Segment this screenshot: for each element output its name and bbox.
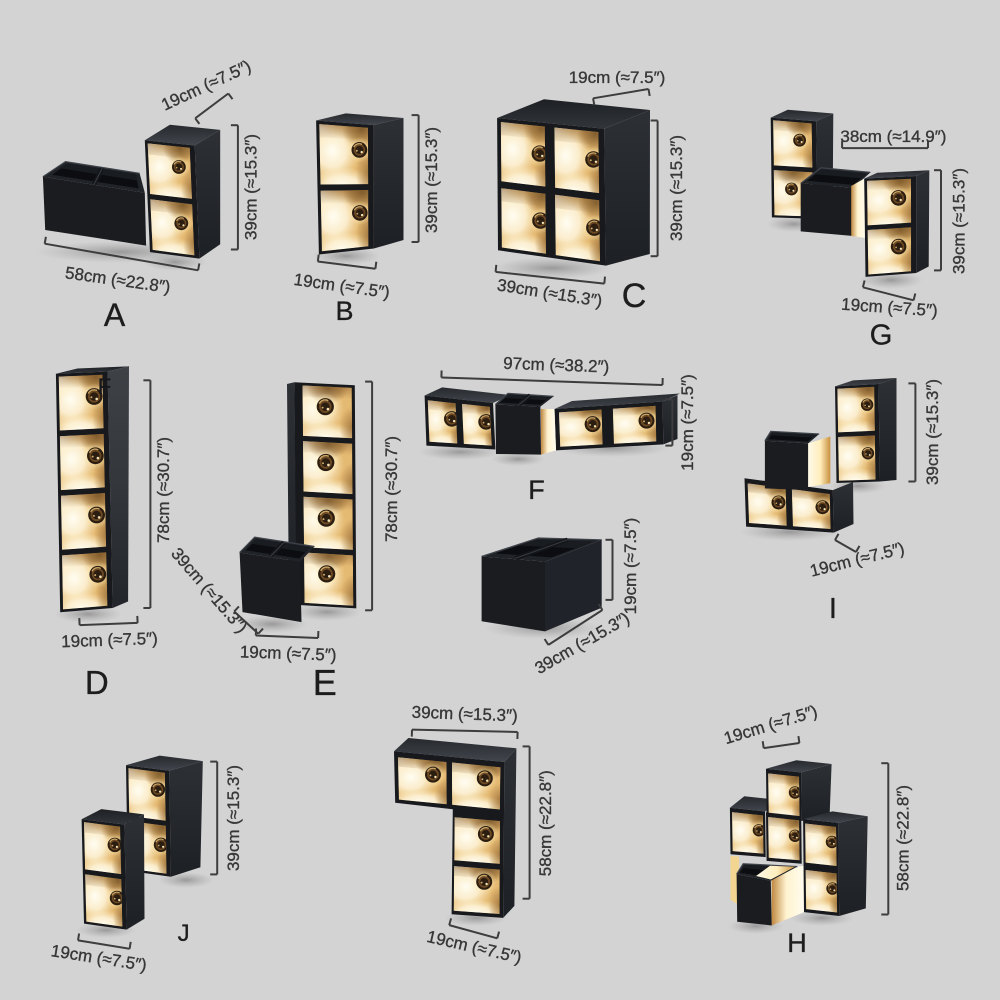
svg-text:97cm (≈38.2″): 97cm (≈38.2″) bbox=[503, 354, 610, 377]
svg-text:E: E bbox=[313, 662, 337, 703]
svg-text:19cm (≈7.5″): 19cm (≈7.5″) bbox=[569, 68, 666, 87]
svg-text:D: D bbox=[85, 664, 109, 701]
svg-text:J: J bbox=[178, 920, 190, 947]
svg-text:39cm (≈15.3″): 39cm (≈15.3″) bbox=[411, 703, 518, 726]
svg-text:39cm (≈15.3″): 39cm (≈15.3″) bbox=[667, 135, 686, 241]
svg-text:G: G bbox=[870, 320, 893, 352]
svg-text:39cm (≈15.3″): 39cm (≈15.3″) bbox=[923, 379, 942, 485]
svg-text:A: A bbox=[104, 297, 126, 333]
svg-text:39cm (≈15.3″): 39cm (≈15.3″) bbox=[422, 127, 441, 233]
svg-text:78cm (≈30.7″): 78cm (≈30.7″) bbox=[154, 437, 173, 543]
svg-text:58cm (≈22.8″): 58cm (≈22.8″) bbox=[894, 785, 913, 891]
svg-text:78cm (≈30.7″): 78cm (≈30.7″) bbox=[382, 436, 401, 542]
svg-text:38cm (≈14.9″): 38cm (≈14.9″) bbox=[840, 127, 946, 146]
svg-text:I: I bbox=[829, 593, 837, 625]
svg-text:C: C bbox=[622, 277, 647, 315]
svg-text:39cm (≈15.3″): 39cm (≈15.3″) bbox=[242, 134, 261, 240]
svg-text:39cm (≈15.3″): 39cm (≈15.3″) bbox=[224, 765, 243, 871]
svg-text:F: F bbox=[528, 475, 545, 505]
svg-text:F: F bbox=[98, 374, 111, 399]
svg-text:19cm (≈7.5″): 19cm (≈7.5″) bbox=[621, 518, 640, 615]
svg-text:19cm (≈7.5″): 19cm (≈7.5″) bbox=[678, 374, 697, 471]
svg-text:H: H bbox=[787, 928, 807, 958]
svg-text:39cm (≈15.3″): 39cm (≈15.3″) bbox=[949, 168, 968, 274]
svg-text:19cm (≈7.5″): 19cm (≈7.5″) bbox=[61, 629, 158, 651]
svg-text:B: B bbox=[335, 296, 353, 326]
svg-text:58cm (≈22.8″): 58cm (≈22.8″) bbox=[536, 770, 555, 876]
